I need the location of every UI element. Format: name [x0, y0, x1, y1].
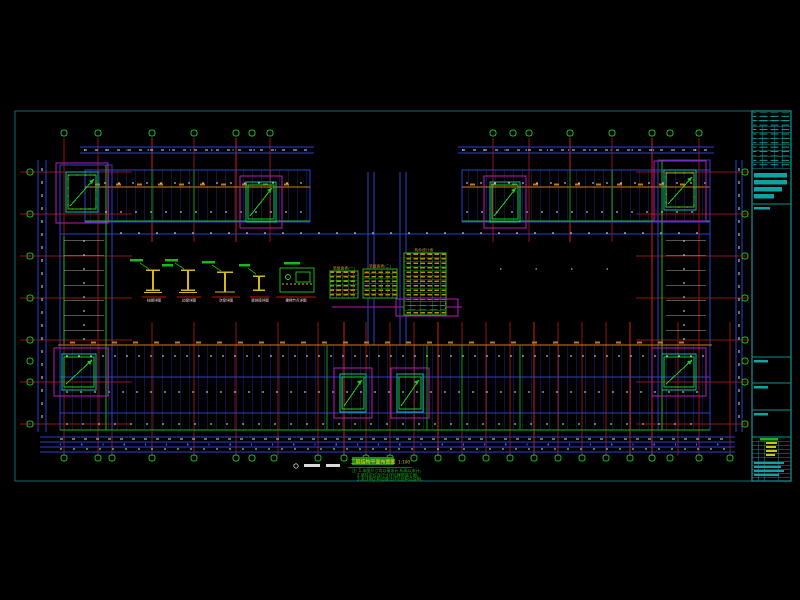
cad-screenshot: 柱脚详图 边梁详图 次梁详图 梁拼接详图 楼梯节点详图 梁截面表(一) 梁截面表… [0, 0, 800, 600]
detail-caption-4: 梁拼接详图 [251, 298, 269, 303]
detail-caption-5: 楼梯节点详图 [286, 298, 307, 303]
drawing-scale: 1:100 [398, 460, 410, 465]
detail-caption-3: 次梁详图 [219, 298, 233, 303]
title-block-header-text [753, 112, 789, 168]
footer-mark-1 [304, 464, 320, 467]
title-block [752, 111, 791, 481]
table-a-title: 梁截面表(一) [333, 266, 355, 271]
schedule-table-b: 梁截面表(二) [363, 264, 397, 299]
top-right-wing [462, 170, 710, 222]
note-line-3: 3.未注明之构造做法详见结构总说明。 [357, 475, 425, 481]
footer-mark-2 [326, 464, 340, 467]
table-b-title: 梁截面表(二) [369, 264, 391, 269]
detail-caption-2: 边梁详图 [182, 298, 196, 303]
schedule-table-a: 梁截面表(一) [330, 266, 358, 299]
detail-caption-1: 柱脚详图 [147, 298, 161, 303]
drawing-canvas: 柱脚详图 边梁详图 次梁详图 梁拼接详图 楼梯节点详图 梁截面表(一) 梁截面表… [0, 0, 800, 600]
drawing-title: 二层结构平面布置图 [350, 459, 395, 466]
table-c-title: 构件统计表 [415, 248, 434, 253]
bottom-wing [58, 345, 712, 430]
